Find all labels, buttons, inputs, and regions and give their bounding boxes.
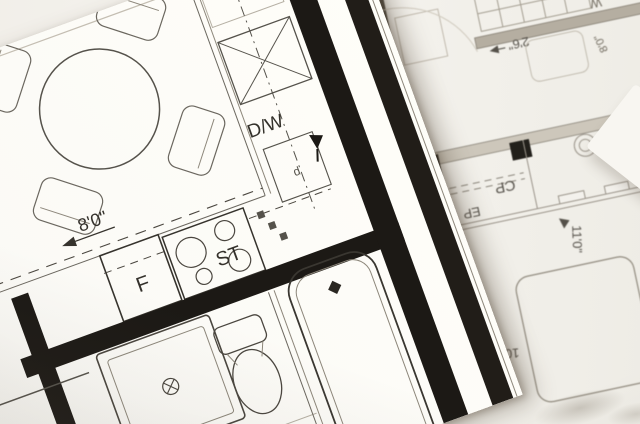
counter-dot <box>256 210 265 219</box>
dishwasher-label: D/W <box>245 111 287 143</box>
cabinet-box <box>395 9 448 65</box>
window-mullion <box>517 0 524 22</box>
chair <box>166 103 228 177</box>
stove-label: ST <box>213 242 245 271</box>
window-mullion <box>495 0 502 27</box>
window-mullion <box>538 0 545 18</box>
window-mullion <box>478 0 588 14</box>
window-mullion <box>560 0 567 13</box>
counter-dashed-line <box>104 251 167 274</box>
blueprint-photo: d 8'0" 2'6" W O 8'0" <box>0 0 640 424</box>
burner <box>212 218 238 244</box>
burner <box>194 266 215 287</box>
cabinet-letter-label: d <box>291 164 302 179</box>
counter-dot <box>268 221 277 230</box>
tub-drain-icon <box>326 278 344 296</box>
counter-edge <box>192 0 271 194</box>
closet-label: CP <box>493 176 517 197</box>
furniture-outline <box>524 30 589 83</box>
dimension-label: 11'0" <box>569 225 585 254</box>
chair <box>0 40 33 114</box>
panel-label: EP <box>462 204 482 222</box>
fridge-label: F <box>133 271 153 297</box>
door-marker <box>309 131 327 150</box>
door-jamb <box>604 181 629 194</box>
dimension-label: 8'0" <box>75 207 110 236</box>
cabinet-xbox-diagonal <box>218 17 312 105</box>
burner <box>172 233 210 271</box>
dimension-arrow <box>60 237 77 251</box>
wall-thick <box>20 222 405 378</box>
dining-table <box>23 32 177 186</box>
dimension-arrow <box>489 45 499 55</box>
toilet-bowl <box>224 343 290 421</box>
dimension-label: 8'0" <box>592 33 611 55</box>
counter-dot <box>279 232 288 241</box>
door-jamb <box>558 191 585 204</box>
toilet-line <box>257 341 267 356</box>
dimension-arrow <box>559 216 571 229</box>
